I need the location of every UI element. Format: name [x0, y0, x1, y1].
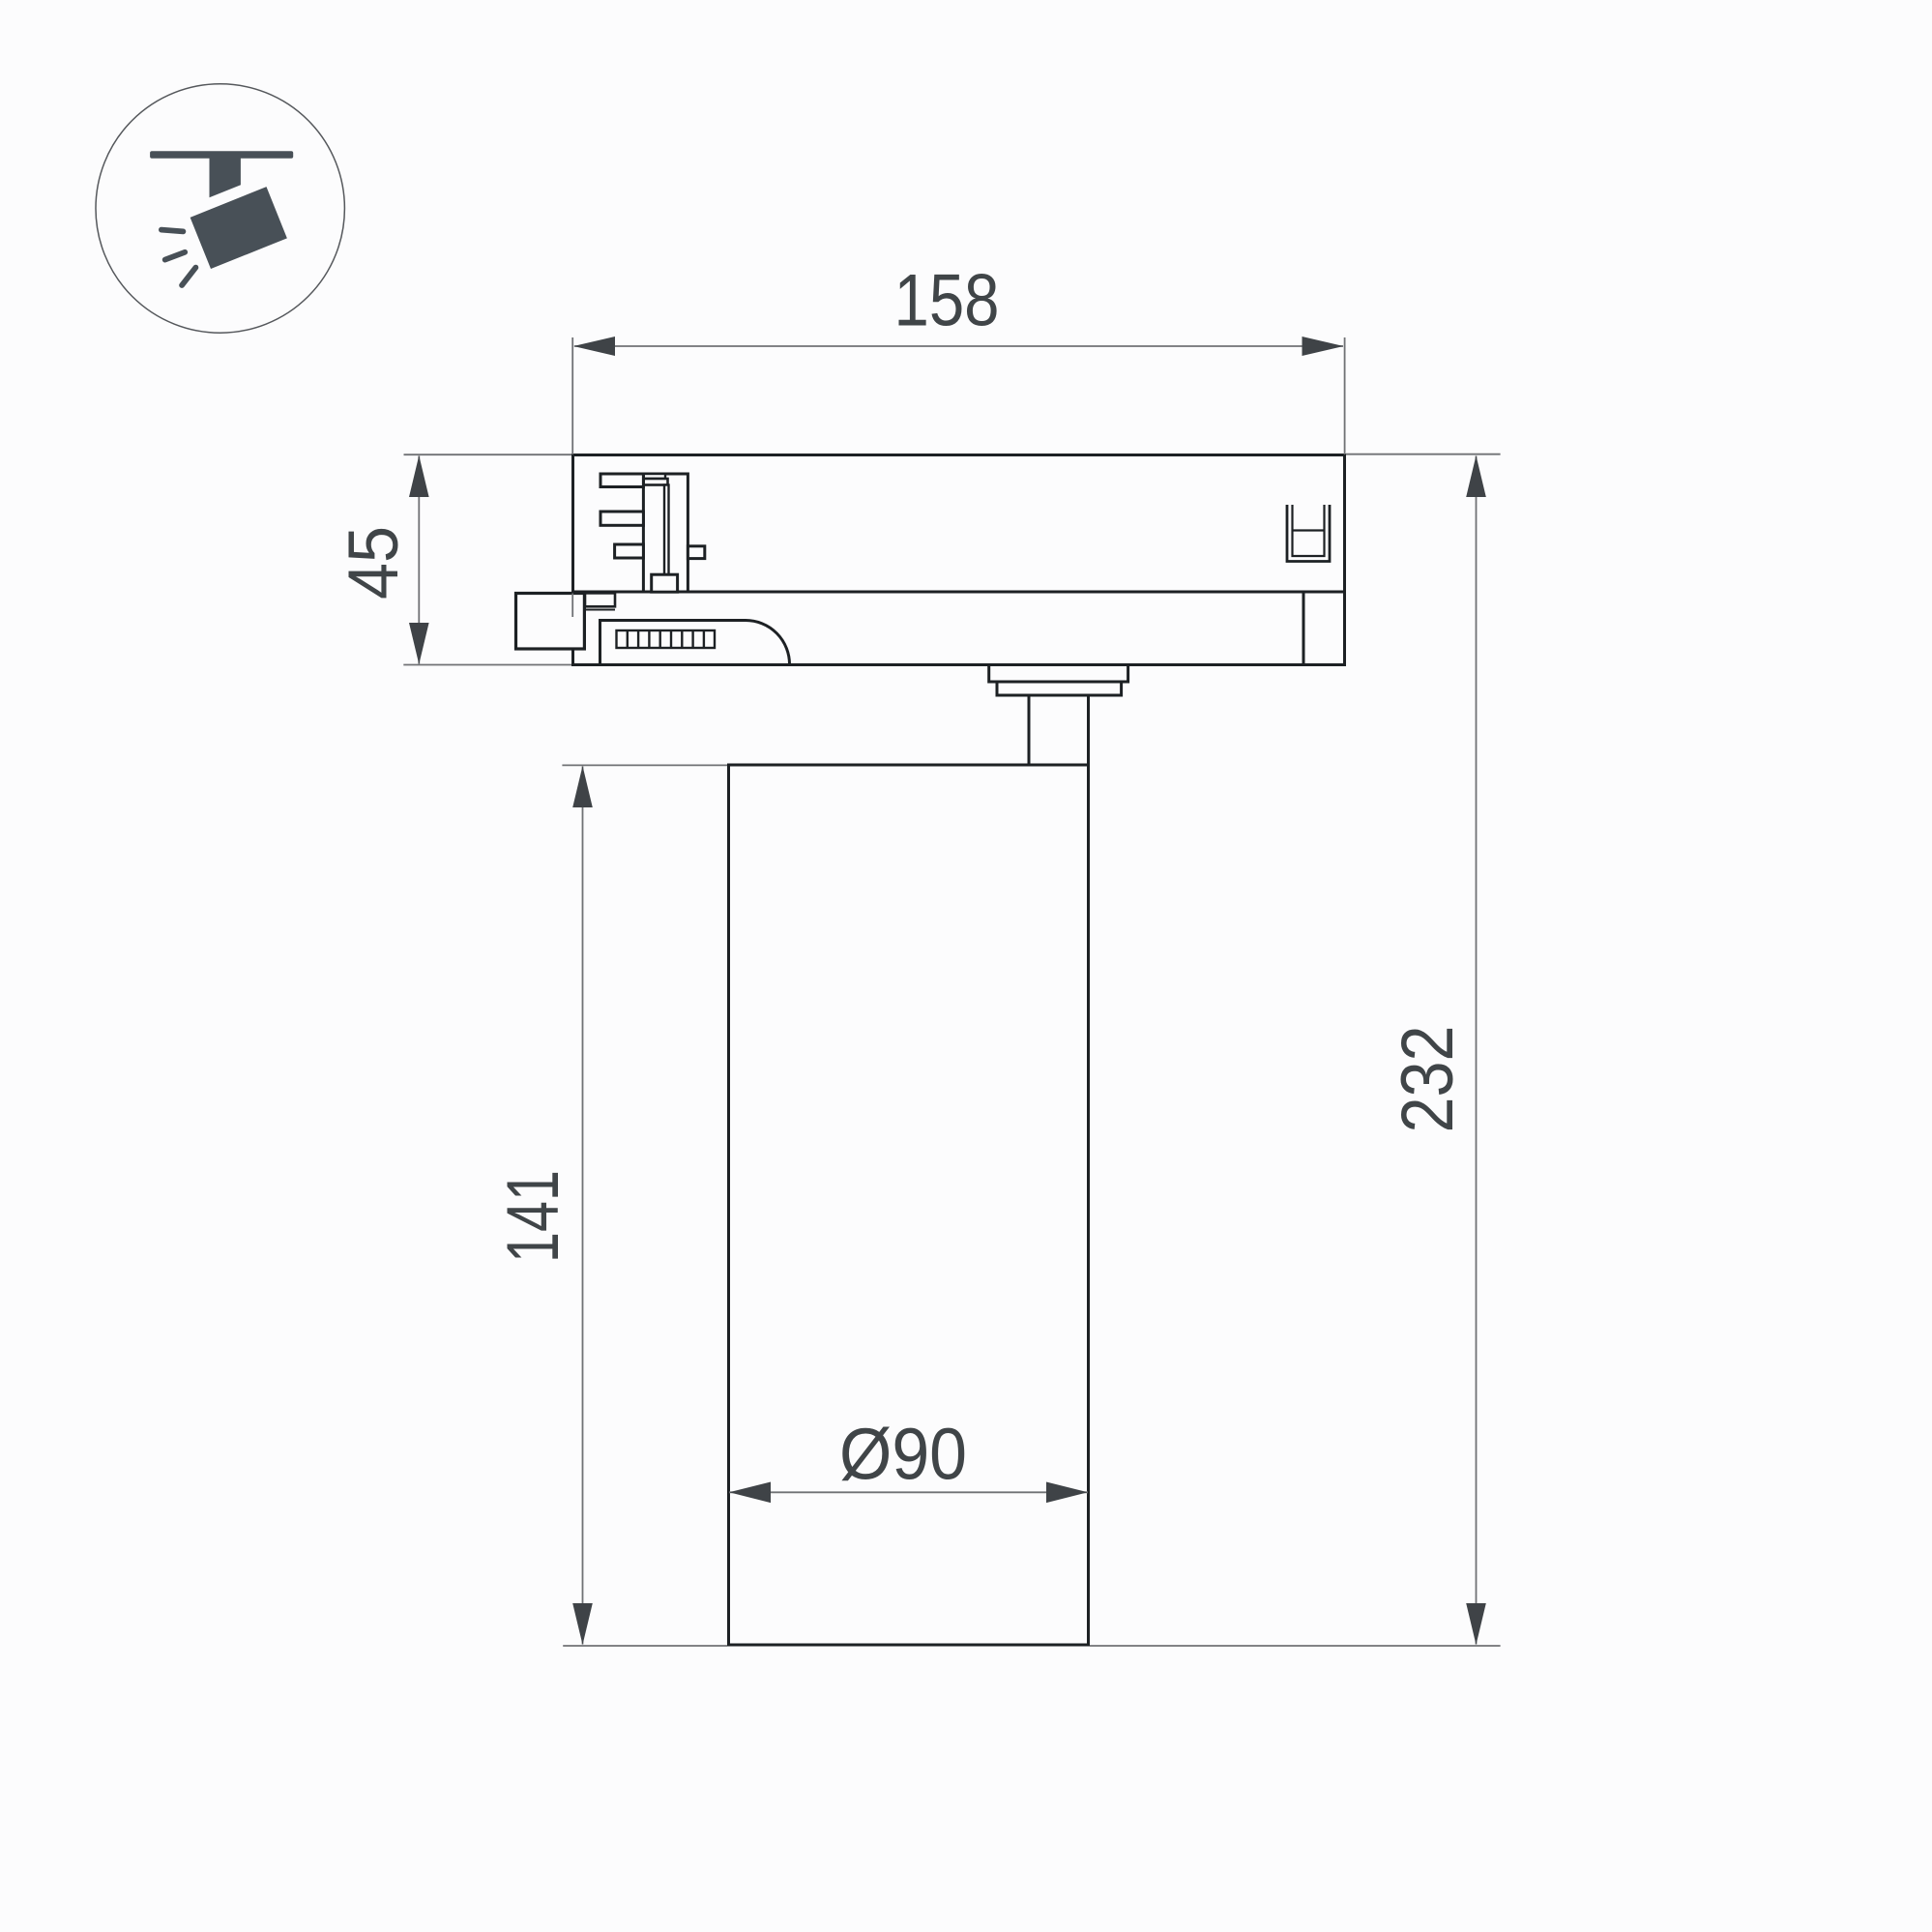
svg-text:158: 158	[894, 260, 1000, 342]
svg-text:45: 45	[335, 526, 413, 600]
svg-text:141: 141	[492, 1170, 574, 1263]
svg-text:Ø90: Ø90	[839, 1414, 967, 1495]
svg-text:232: 232	[1387, 1026, 1469, 1133]
